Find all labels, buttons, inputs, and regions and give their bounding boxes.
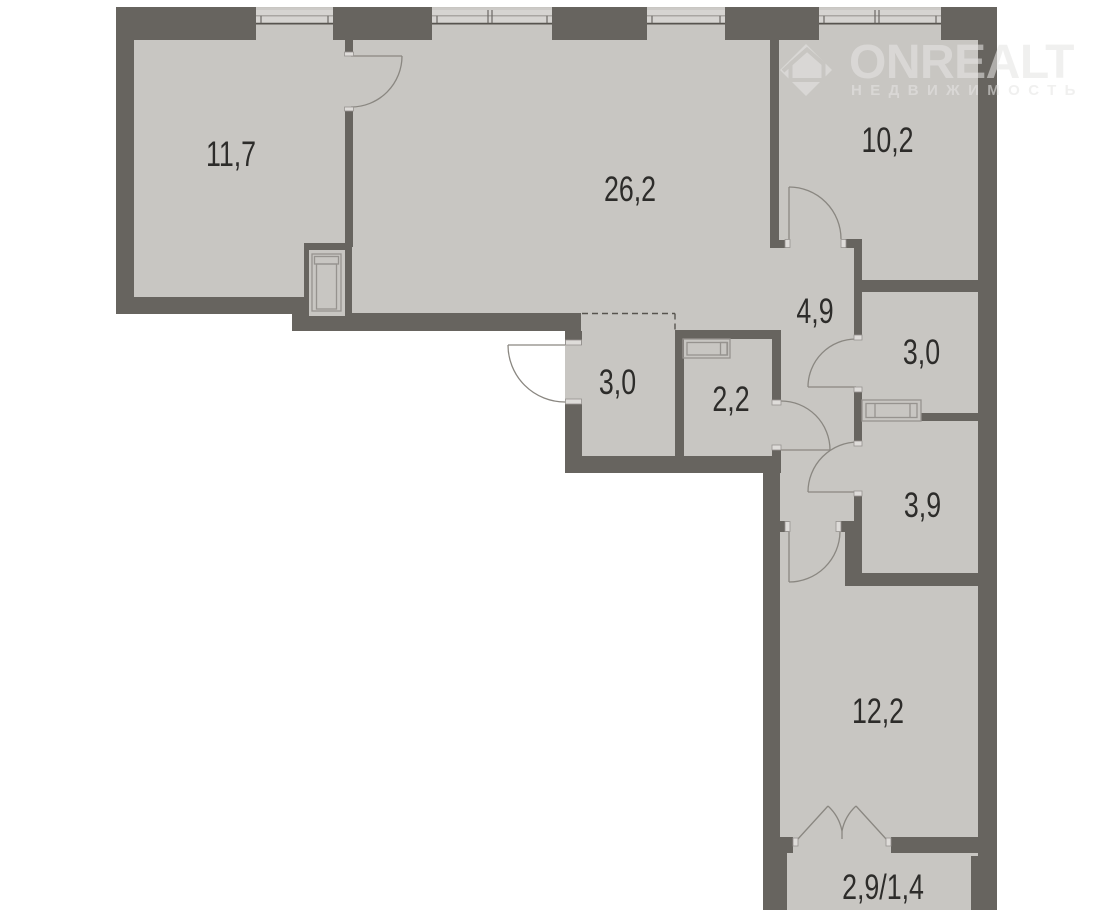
svg-text:3,0: 3,0 xyxy=(903,333,940,372)
svg-text:НЕДВИЖИМОСТЬ: НЕДВИЖИМОСТЬ xyxy=(851,82,1084,99)
svg-text:2,2: 2,2 xyxy=(712,380,749,419)
svg-text:3,9: 3,9 xyxy=(904,486,941,525)
svg-text:10,2: 10,2 xyxy=(861,121,913,160)
svg-text:12,2: 12,2 xyxy=(852,692,904,731)
svg-text:3,0: 3,0 xyxy=(599,363,636,402)
svg-text:11,7: 11,7 xyxy=(206,135,256,174)
svg-text:4,9: 4,9 xyxy=(796,292,833,331)
svg-text:2,9/1,4: 2,9/1,4 xyxy=(842,868,924,907)
svg-text:26,2: 26,2 xyxy=(604,170,656,209)
